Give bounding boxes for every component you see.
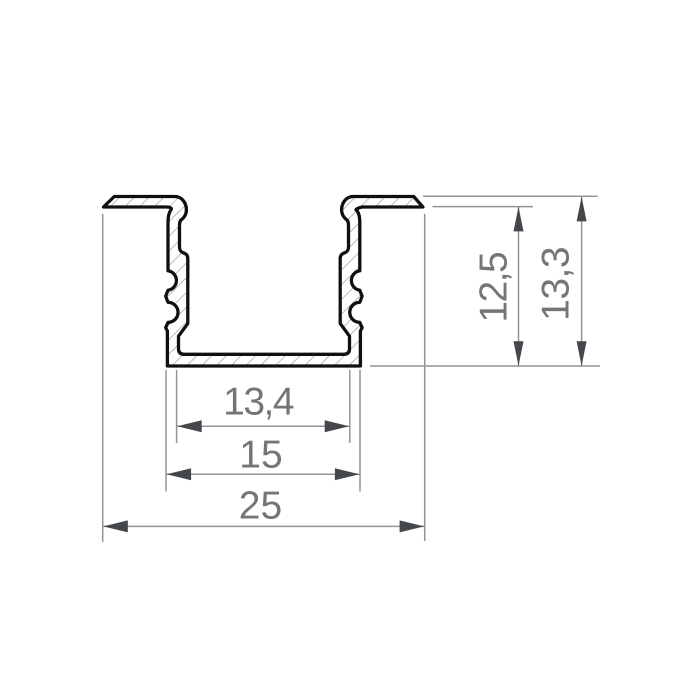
svg-text:25: 25 — [239, 485, 282, 528]
svg-text:15: 15 — [239, 434, 282, 477]
svg-text:13,3: 13,3 — [535, 247, 578, 321]
svg-text:12,5: 12,5 — [472, 252, 515, 323]
svg-text:13,4: 13,4 — [223, 381, 294, 424]
